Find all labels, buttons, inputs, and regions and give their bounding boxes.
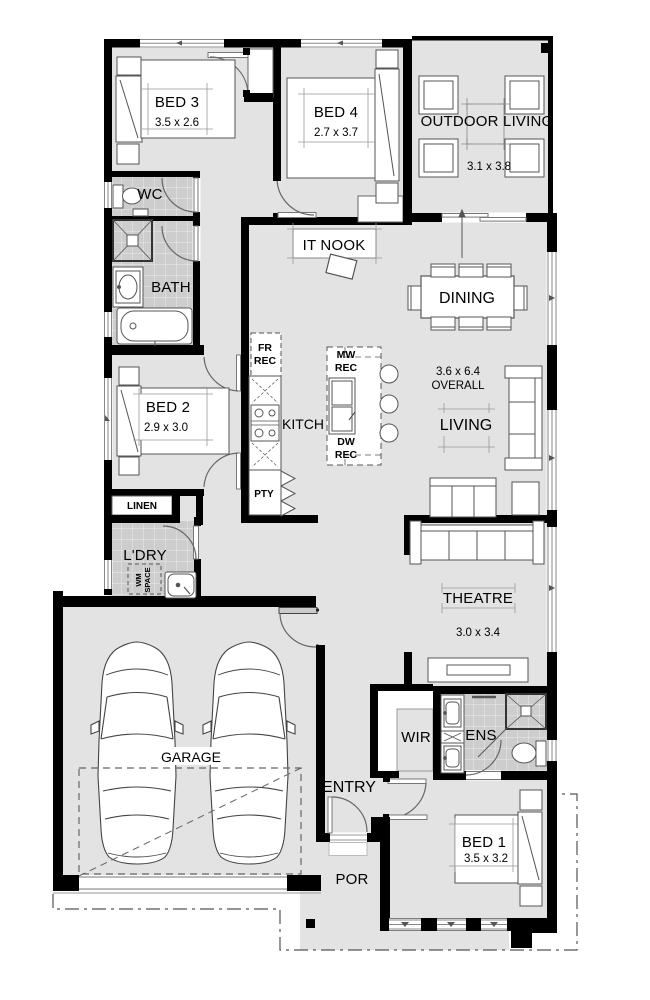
svg-text:3.5 x 3.2: 3.5 x 3.2 — [464, 853, 508, 865]
svg-text:WM: WM — [134, 573, 143, 586]
svg-text:3.5 x 2.6: 3.5 x 2.6 — [155, 117, 199, 129]
svg-text:REC: REC — [335, 362, 358, 374]
svg-text:WC: WC — [137, 186, 162, 203]
svg-text:2.7 x 3.7: 2.7 x 3.7 — [314, 127, 358, 139]
svg-text:OUTDOOR LIVING: OUTDOOR LIVING — [421, 113, 554, 130]
svg-text:3.6 x 6.4: 3.6 x 6.4 — [436, 366, 481, 378]
svg-text:LINEN: LINEN — [127, 501, 157, 512]
svg-text:MW: MW — [337, 349, 356, 361]
svg-text:BED 1: BED 1 — [462, 834, 506, 851]
svg-text:ENS: ENS — [465, 727, 496, 744]
svg-text:BED 2: BED 2 — [146, 399, 190, 416]
svg-text:L'DRY: L'DRY — [123, 547, 167, 564]
svg-text:BATH: BATH — [151, 279, 191, 296]
svg-text:REC: REC — [254, 355, 277, 367]
svg-text:FR: FR — [258, 342, 272, 354]
svg-text:THEATRE: THEATRE — [443, 590, 513, 607]
svg-text:KITCH: KITCH — [282, 416, 324, 432]
svg-text:BED 3: BED 3 — [155, 94, 199, 111]
svg-text:POR: POR — [335, 871, 368, 888]
svg-text:3.0 x 3.4: 3.0 x 3.4 — [456, 627, 501, 639]
svg-text:DINING: DINING — [439, 290, 495, 307]
svg-text:2.9 x 3.0: 2.9 x 3.0 — [144, 422, 188, 434]
svg-text:PTY: PTY — [254, 489, 274, 500]
svg-text:BED 4: BED 4 — [314, 104, 358, 121]
svg-text:ENTRY: ENTRY — [322, 779, 376, 796]
svg-text:LIVING: LIVING — [440, 417, 492, 434]
svg-text:DW: DW — [337, 436, 355, 448]
svg-text:SPACE: SPACE — [143, 567, 152, 592]
svg-text:3.1 x 3.8: 3.1 x 3.8 — [467, 161, 511, 173]
svg-text:IT NOOK: IT NOOK — [303, 237, 366, 254]
svg-text:GARAGE: GARAGE — [161, 749, 221, 765]
svg-text:OVERALL: OVERALL — [431, 380, 485, 392]
svg-text:WIR: WIR — [401, 729, 431, 746]
svg-text:REC: REC — [335, 449, 358, 461]
